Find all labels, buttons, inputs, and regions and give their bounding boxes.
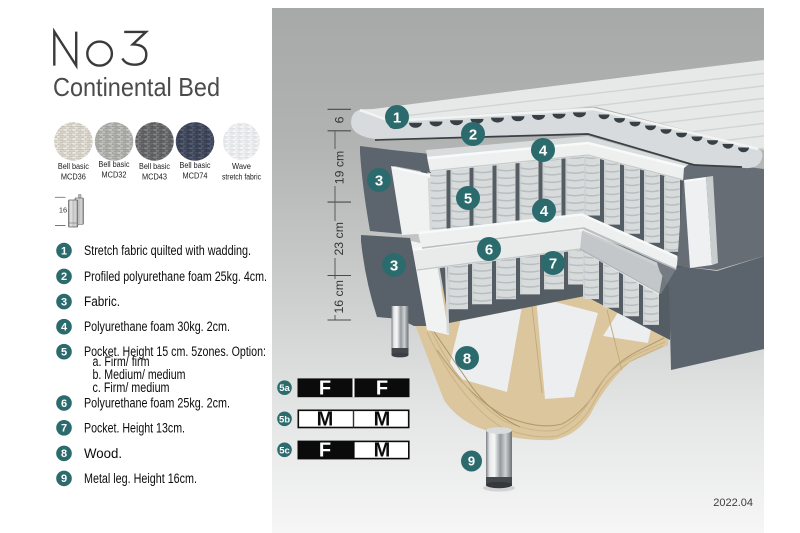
svg-text:3: 3 xyxy=(390,257,398,274)
svg-text:5: 5 xyxy=(464,190,472,207)
svg-text:F: F xyxy=(319,440,331,462)
svg-text:5b: 5b xyxy=(279,414,290,425)
svg-text:2: 2 xyxy=(469,126,477,143)
svg-text:19 cm: 19 cm xyxy=(332,151,346,185)
svg-text:5c: 5c xyxy=(279,445,290,456)
svg-text:9: 9 xyxy=(468,454,475,469)
svg-text:6: 6 xyxy=(485,241,493,258)
svg-text:4: 4 xyxy=(540,203,549,220)
svg-text:2022.04: 2022.04 xyxy=(713,497,753,509)
svg-text:F: F xyxy=(319,377,331,399)
svg-text:16 cm: 16 cm xyxy=(332,280,346,314)
svg-text:1: 1 xyxy=(393,109,401,126)
svg-text:5a: 5a xyxy=(279,383,290,394)
svg-text:M: M xyxy=(374,440,391,462)
svg-text:8: 8 xyxy=(463,350,471,367)
svg-text:7: 7 xyxy=(549,255,557,272)
svg-text:6: 6 xyxy=(332,116,346,123)
svg-text:M: M xyxy=(374,408,391,430)
svg-text:4: 4 xyxy=(539,142,548,159)
svg-text:23 cm: 23 cm xyxy=(332,222,346,256)
svg-text:F: F xyxy=(376,377,388,399)
svg-text:3: 3 xyxy=(375,172,383,189)
svg-text:M: M xyxy=(317,408,334,430)
